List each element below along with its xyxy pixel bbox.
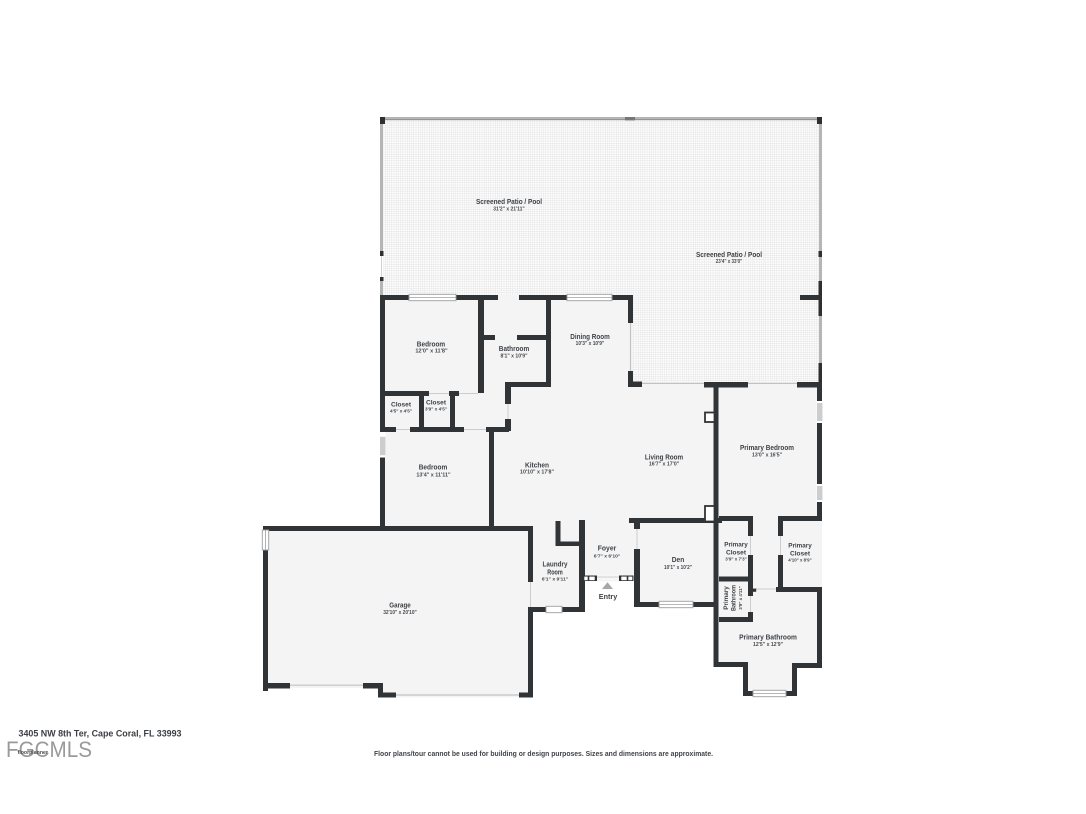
svg-text:10'10" x 17'8": 10'10" x 17'8" bbox=[520, 470, 555, 476]
svg-text:Primary: Primary bbox=[723, 586, 730, 610]
svg-text:Floor plans/tour cannot be use: Floor plans/tour cannot be used for buil… bbox=[374, 749, 713, 758]
svg-text:10'1" x 10'2": 10'1" x 10'2" bbox=[664, 565, 693, 571]
svg-text:Foyer: Foyer bbox=[598, 543, 617, 552]
svg-text:3'9" x 4'5": 3'9" x 4'5" bbox=[425, 407, 447, 413]
svg-text:Closet: Closet bbox=[790, 550, 811, 557]
svg-text:32'10" x 20'10": 32'10" x 20'10" bbox=[383, 610, 417, 616]
svg-text:Garage: Garage bbox=[389, 601, 411, 610]
svg-text:12'5" x 12'9": 12'5" x 12'9" bbox=[753, 642, 784, 648]
svg-text:13'4" x 11'11": 13'4" x 11'11" bbox=[416, 473, 451, 479]
svg-text:Primary Bathroom: Primary Bathroom bbox=[739, 632, 797, 641]
svg-text:Den: Den bbox=[672, 555, 685, 564]
svg-text:23'4" x 33'0": 23'4" x 33'0" bbox=[716, 259, 743, 265]
svg-text:Screened Patio / Pool: Screened Patio / Pool bbox=[476, 197, 542, 206]
svg-text:4'5" x 4'5": 4'5" x 4'5" bbox=[390, 409, 412, 415]
svg-text:6'7" x 6'10": 6'7" x 6'10" bbox=[594, 553, 621, 559]
svg-text:Kitchen: Kitchen bbox=[525, 461, 549, 470]
svg-text:Primary: Primary bbox=[788, 542, 812, 549]
svg-text:Primary Bedroom: Primary Bedroom bbox=[740, 443, 794, 452]
svg-text:12'0" x 11'8": 12'0" x 11'8" bbox=[415, 348, 448, 354]
svg-text:Bedroom: Bedroom bbox=[419, 462, 448, 471]
svg-text:3'9" x 7'3": 3'9" x 7'3" bbox=[725, 557, 747, 563]
svg-text:31'2" x 21'11": 31'2" x 21'11" bbox=[493, 207, 525, 213]
svg-text:Bathroom: Bathroom bbox=[731, 585, 738, 611]
svg-text:Primary: Primary bbox=[724, 541, 748, 548]
svg-text:16'7" x 17'0": 16'7" x 17'0" bbox=[649, 462, 680, 468]
svg-text:Bathroom: Bathroom bbox=[499, 344, 529, 353]
svg-text:floorplanner: floorplanner bbox=[18, 750, 49, 756]
svg-text:Closet: Closet bbox=[391, 402, 412, 409]
svg-text:6'1" x 9'11": 6'1" x 9'11" bbox=[542, 577, 569, 583]
svg-text:Screened Patio / Pool: Screened Patio / Pool bbox=[696, 250, 762, 259]
svg-text:Living Room: Living Room bbox=[645, 453, 683, 462]
svg-text:13'0" x 16'5": 13'0" x 16'5" bbox=[752, 452, 783, 458]
svg-text:10'3" x 10'9": 10'3" x 10'9" bbox=[576, 341, 605, 347]
svg-text:Closet: Closet bbox=[426, 400, 447, 407]
svg-text:8'1" x 10'9": 8'1" x 10'9" bbox=[501, 353, 529, 359]
svg-text:3'9" x 4'11": 3'9" x 4'11" bbox=[738, 586, 744, 610]
svg-text:Bedroom: Bedroom bbox=[417, 339, 445, 348]
svg-text:Dining Room: Dining Room bbox=[570, 332, 609, 341]
svg-text:Closet: Closet bbox=[726, 549, 747, 556]
svg-text:Room: Room bbox=[547, 567, 563, 576]
svg-text:Entry: Entry bbox=[599, 592, 618, 601]
svg-text:4'10" x 8'9": 4'10" x 8'9" bbox=[788, 557, 812, 563]
